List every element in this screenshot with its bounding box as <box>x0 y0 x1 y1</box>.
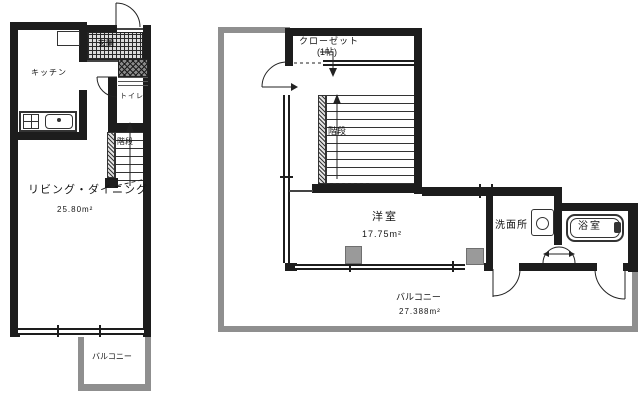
washroom-door-arc <box>543 247 575 263</box>
living-south-window <box>18 328 144 335</box>
bath-faucet-icon <box>614 222 621 233</box>
structural-pillar <box>466 248 484 265</box>
storage-shelf <box>118 77 148 86</box>
balcony2-north-railing <box>218 27 290 33</box>
bathroom-east-wall <box>628 203 638 272</box>
shoe-cabinet <box>118 59 148 77</box>
room-west-window <box>283 95 290 263</box>
room-north-wall <box>312 184 422 193</box>
balcony-door2-arc <box>595 269 625 299</box>
entrance-step-edge <box>87 60 118 62</box>
stairs2-banister <box>318 95 326 184</box>
south-wall-segment <box>484 263 493 271</box>
western-room-area: 17.75m² <box>362 230 402 239</box>
arrowhead-left-washroom <box>543 251 549 257</box>
window-mullion-tick <box>99 325 101 337</box>
south-wall-segment <box>519 263 597 271</box>
bathroom-north-wall <box>554 203 638 211</box>
window-mullion-tick <box>57 325 59 337</box>
window-mullion-tick <box>479 184 481 198</box>
toilet-label: トイレ <box>120 93 144 100</box>
right-plan-north-wall <box>285 28 422 36</box>
washbasin-bowl-icon <box>536 217 549 230</box>
arrowhead-right-west-door <box>291 83 298 91</box>
living-dining-label: リビング・ダイニング <box>28 185 148 196</box>
bathroom-label: 浴室 <box>578 222 602 232</box>
stairs-label-1f: 階段 <box>117 138 133 146</box>
left-plan-west-wall <box>10 22 18 337</box>
window-mullion-tick <box>280 176 293 178</box>
kitchen-south-wall <box>10 132 87 140</box>
closet-label: クローゼット <box>299 37 359 46</box>
closet-west-wall <box>285 28 293 66</box>
room-south-window <box>295 264 465 270</box>
balcony-label-2f: バルコニー <box>396 293 441 302</box>
stairs-label-2f: 階段 <box>328 127 346 136</box>
kitchen-cupboard <box>57 31 80 46</box>
balcony-south-railing <box>78 384 151 391</box>
south-wall-corner <box>623 263 638 271</box>
washroom-label: 洗面所 <box>495 221 528 231</box>
balcony2-east-railing <box>632 270 638 332</box>
entrance-door-threshold <box>117 28 144 30</box>
window-mullion-tick <box>452 261 454 272</box>
floor-plan-canvas: キッチン 玄関 トイレ 階段 リビング・ダイニング 25.80m² バルコニー … <box>0 0 640 411</box>
entrance-tile-floor <box>87 32 143 60</box>
room-north-wall-thin <box>289 190 313 192</box>
balcony-west-railing <box>78 337 84 390</box>
closet-size-label: (1帖) <box>317 48 337 57</box>
west-balcony-door-arc <box>262 62 287 87</box>
western-room-label: 洋室 <box>372 212 398 223</box>
balcony2-south-railing <box>218 326 638 332</box>
right-plan-east-upper-wall <box>414 28 422 194</box>
left-plan-north-wall <box>10 22 87 30</box>
closet-sliding-door <box>323 60 414 66</box>
structural-pillar <box>345 246 362 264</box>
entrance-door-arc <box>116 3 140 27</box>
stairs-banister <box>107 132 115 178</box>
balcony-east-railing <box>145 337 151 391</box>
balcony-area-2f: 27.388m² <box>399 308 441 316</box>
room-washroom-divider <box>486 196 493 263</box>
living-dining-area: 25.80m² <box>57 206 93 214</box>
kitchen-label: キッチン <box>31 69 67 77</box>
toilet-south-wall <box>108 123 151 132</box>
stove-burners-icon <box>23 114 39 129</box>
sink-faucet-icon <box>57 118 61 122</box>
staircase2-steps <box>326 95 414 184</box>
washroom-bathroom-divider <box>554 211 562 245</box>
balcony2-west-railing <box>218 27 224 332</box>
arrowhead-down-closet <box>329 68 337 77</box>
entrance-label: 玄関 <box>98 40 114 48</box>
left-plan-entrance-wall <box>87 25 117 32</box>
kitchen-entrance-divider-wall <box>79 30 87 62</box>
arrowhead-right-washroom <box>569 251 575 257</box>
balcony-label-1f: バルコニー <box>92 353 132 361</box>
balcony-door1-arc <box>493 269 520 296</box>
